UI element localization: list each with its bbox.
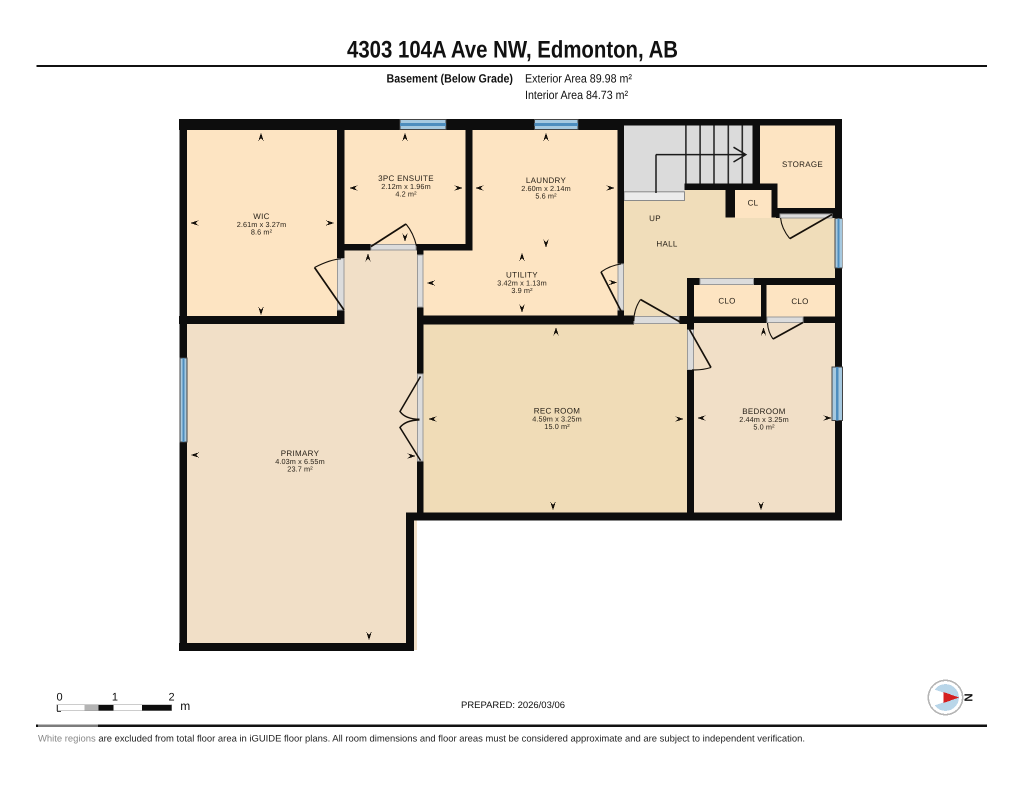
svg-text:Basement (Below Grade): Basement (Below Grade): [387, 72, 514, 86]
svg-text:CLO: CLO: [718, 297, 735, 306]
svg-text:White regions are excluded fro: White regions are excluded from total fl…: [38, 733, 805, 744]
svg-text:4.2 m²: 4.2 m²: [395, 190, 417, 199]
svg-text:4303 104A Ave NW, Edmonton, AB: 4303 104A Ave NW, Edmonton, AB: [347, 37, 678, 64]
svg-text:15.0 m²: 15.0 m²: [544, 422, 570, 431]
svg-text:23.7 m²: 23.7 m²: [287, 465, 313, 474]
svg-text:STORAGE: STORAGE: [782, 160, 823, 169]
svg-text:Exterior Area 89.98 m²: Exterior Area 89.98 m²: [525, 72, 632, 86]
svg-text:CL: CL: [748, 199, 759, 208]
svg-text:m: m: [180, 699, 190, 713]
svg-text:UP: UP: [649, 214, 661, 223]
svg-text:HALL: HALL: [656, 240, 677, 249]
svg-text:PREPARED: 2026/03/06: PREPARED: 2026/03/06: [461, 699, 565, 710]
svg-text:1: 1: [112, 692, 118, 704]
svg-text:5.0 m²: 5.0 m²: [753, 423, 775, 432]
svg-text:5.6 m²: 5.6 m²: [535, 192, 557, 201]
svg-text:3.9 m²: 3.9 m²: [511, 286, 533, 295]
svg-text:8.6 m²: 8.6 m²: [251, 228, 273, 237]
svg-text:0: 0: [56, 692, 62, 704]
svg-text:CLO: CLO: [791, 297, 808, 306]
svg-text:2: 2: [168, 692, 174, 704]
svg-text:Interior Area 84.73 m²: Interior Area 84.73 m²: [525, 88, 628, 102]
svg-text:N: N: [962, 693, 974, 701]
